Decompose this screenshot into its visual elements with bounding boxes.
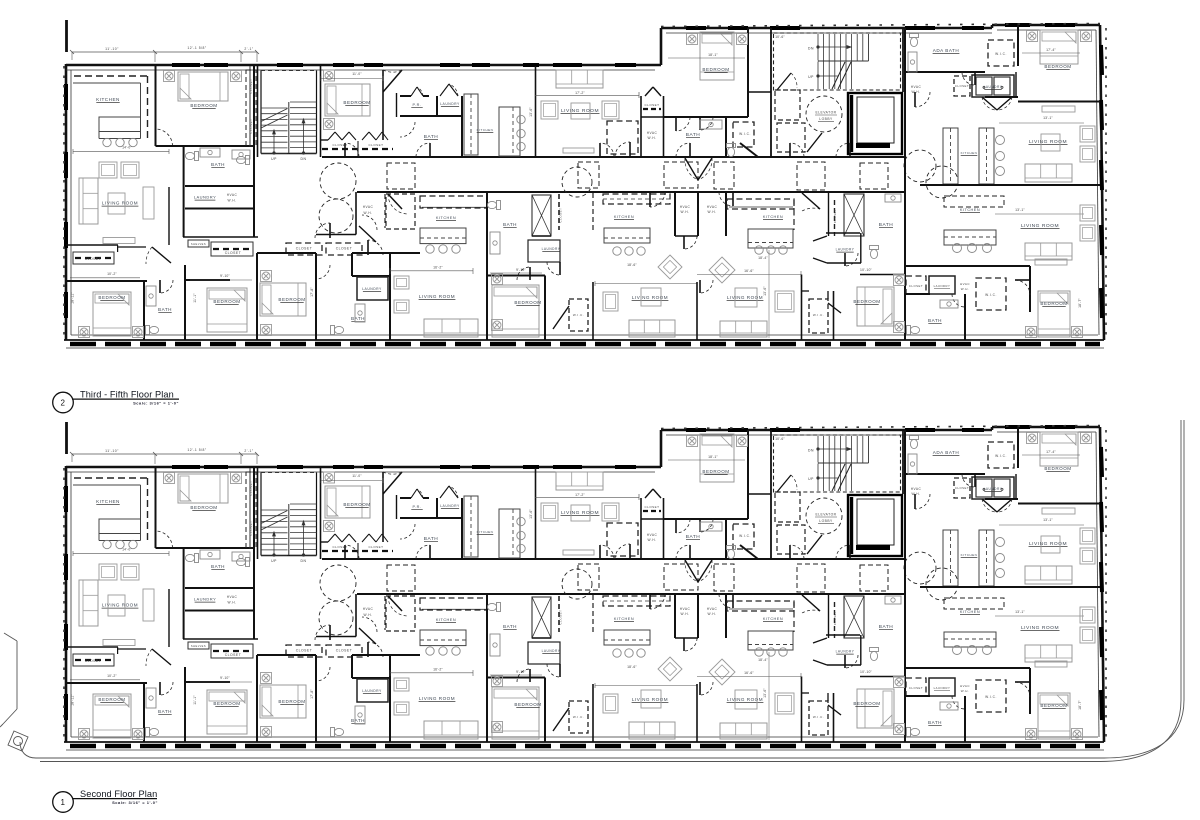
svg-text:LIVING ROOM: LIVING ROOM [419, 696, 455, 701]
svg-text:W.H.: W.H. [228, 601, 237, 605]
svg-text:ADA BATH: ADA BATH [933, 48, 959, 53]
svg-text:BEDROOM: BEDROOM [278, 699, 305, 704]
svg-text:18'-11": 18'-11" [71, 292, 75, 304]
svg-text:BEDROOM: BEDROOM [853, 701, 880, 706]
svg-text:2'-1": 2'-1" [244, 47, 254, 51]
svg-text:UP: UP [271, 559, 277, 563]
svg-text:11'-1": 11'-1" [193, 695, 197, 705]
svg-text:DN: DN [301, 559, 307, 563]
svg-text:HVAC: HVAC [707, 607, 718, 611]
svg-text:17'-8": 17'-8" [310, 688, 314, 698]
svg-text:KITCHEN: KITCHEN [96, 499, 120, 504]
svg-text:W.I.C.: W.I.C. [813, 313, 824, 317]
svg-text:W.I.C.: W.I.C. [985, 293, 997, 297]
svg-text:LAUNDRY: LAUNDRY [194, 597, 217, 602]
svg-text:KITCHEN: KITCHEN [477, 128, 494, 132]
svg-text:18'-11": 18'-11" [71, 694, 75, 706]
svg-text:1: 1 [61, 798, 66, 807]
svg-text:LAUNDRY: LAUNDRY [934, 284, 951, 288]
svg-text:LIVING ROOM: LIVING ROOM [727, 697, 763, 702]
svg-text:LAUNDRY: LAUNDRY [194, 195, 217, 200]
svg-text:KITCHEN: KITCHEN [763, 215, 783, 219]
svg-text:KITCHEN: KITCHEN [96, 97, 120, 102]
svg-text:CLOSET: CLOSET [909, 284, 923, 288]
svg-text:LIVING ROOM: LIVING ROOM [1029, 139, 1067, 145]
svg-text:10'-2": 10'-2" [107, 674, 117, 678]
svg-text:BATH: BATH [879, 624, 893, 630]
svg-text:11'-0": 11'-0" [352, 474, 362, 478]
svg-text:BATH: BATH [211, 162, 225, 167]
svg-text:17'-4": 17'-4" [1046, 450, 1056, 454]
svg-text:13'-1": 13'-1" [1043, 116, 1053, 120]
svg-text:CLOSET: CLOSET [336, 247, 353, 251]
svg-text:LOBBY: LOBBY [819, 117, 833, 121]
svg-text:BATH: BATH [503, 222, 517, 227]
svg-text:18'-4": 18'-4" [758, 256, 768, 260]
svg-text:SHELVES: SHELVES [191, 242, 206, 246]
svg-text:UP: UP [808, 75, 814, 79]
svg-text:BATH: BATH [424, 134, 438, 140]
svg-text:LIVING ROOM: LIVING ROOM [102, 603, 138, 608]
svg-text:LIVING ROOM: LIVING ROOM [1021, 223, 1059, 229]
svg-text:CLOSET: CLOSET [955, 84, 969, 88]
svg-text:CLOSET: CLOSET [644, 505, 659, 509]
svg-text:W.H.: W.H. [681, 210, 690, 214]
svg-text:BEDROOM: BEDROOM [702, 67, 729, 72]
svg-text:W.H.: W.H. [364, 613, 373, 617]
svg-text:W.H.: W.H. [681, 612, 690, 616]
svg-text:LAUNDRY: LAUNDRY [362, 689, 382, 693]
svg-text:17'-2": 17'-2" [575, 493, 585, 497]
svg-text:KITCHEN: KITCHEN [961, 553, 978, 557]
svg-text:BATH: BATH [351, 316, 365, 321]
svg-text:BEDROOM: BEDROOM [190, 505, 217, 510]
svg-text:BATH: BATH [686, 534, 700, 540]
svg-text:CLOSET: CLOSET [559, 609, 563, 624]
svg-text:BEDROOM: BEDROOM [190, 103, 217, 108]
svg-text:11'-10": 11'-10" [105, 449, 119, 453]
svg-text:P.R.: P.R. [413, 505, 422, 509]
svg-text:17'-2": 17'-2" [575, 91, 585, 95]
svg-text:LIVING ROOM: LIVING ROOM [1029, 541, 1067, 547]
svg-text:CLOSET: CLOSET [955, 486, 969, 490]
svg-text:CLOSET: CLOSET [644, 103, 659, 107]
svg-text:W.H.: W.H. [648, 136, 657, 140]
svg-text:LAUNDRY: LAUNDRY [836, 650, 855, 654]
svg-text:BATH: BATH [351, 718, 365, 723]
svg-text:18'-4": 18'-4" [758, 658, 768, 662]
svg-text:CLOSET: CLOSET [249, 78, 253, 93]
svg-text:11'-1": 11'-1" [193, 293, 197, 303]
svg-text:18'-7": 18'-7" [1078, 699, 1082, 709]
svg-text:CLOSET: CLOSET [559, 207, 563, 222]
svg-text:LAUNDRY: LAUNDRY [836, 248, 855, 252]
svg-text:W.H.: W.H. [648, 538, 657, 542]
svg-text:CLOSET: CLOSET [249, 118, 253, 133]
svg-text:KITCHEN: KITCHEN [614, 215, 634, 219]
svg-text:LIVING ROOM: LIVING ROOM [632, 697, 668, 702]
svg-text:9'-10": 9'-10" [220, 274, 230, 278]
svg-text:HVAC: HVAC [363, 205, 374, 209]
svg-text:HVAC: HVAC [960, 282, 970, 286]
svg-text:CLOSET: CLOSET [336, 649, 353, 653]
svg-text:HVAC: HVAC [911, 85, 922, 89]
svg-text:W.H.: W.H. [708, 210, 717, 214]
svg-text:CLOSET: CLOSET [909, 686, 923, 690]
svg-text:SHELVES: SHELVES [191, 644, 206, 648]
svg-text:Scale: 3/16" = 1'-0": Scale: 3/16" = 1'-0" [133, 401, 179, 406]
svg-text:W.H.: W.H. [912, 492, 921, 496]
svg-text:KITCHEN: KITCHEN [614, 617, 634, 621]
svg-text:BATH: BATH [424, 536, 438, 542]
svg-text:13'-6": 13'-6" [529, 106, 533, 116]
svg-text:W.I.C.: W.I.C. [985, 695, 997, 699]
svg-text:14'-0": 14'-0" [122, 146, 132, 150]
svg-text:W.H.: W.H. [961, 689, 970, 693]
svg-text:KITCHEN: KITCHEN [436, 618, 456, 622]
svg-text:BATH: BATH [503, 624, 517, 629]
svg-text:ADA BATH: ADA BATH [933, 450, 959, 455]
svg-text:BEDROOM: BEDROOM [278, 297, 305, 302]
svg-text:BEDROOM: BEDROOM [1040, 301, 1067, 306]
svg-text:HVAC: HVAC [680, 205, 691, 209]
svg-text:HVAC: HVAC [227, 595, 238, 599]
svg-text:DN: DN [808, 47, 814, 51]
svg-text:13'-6": 13'-6" [763, 687, 767, 697]
svg-text:10'-6": 10'-6" [775, 35, 785, 39]
svg-text:CLOSET: CLOSET [368, 143, 383, 147]
svg-text:17'-8": 17'-8" [310, 286, 314, 296]
svg-text:BEDROOM: BEDROOM [213, 299, 240, 304]
svg-text:CLOSET: CLOSET [296, 649, 313, 653]
svg-text:W.H.: W.H. [961, 287, 970, 291]
svg-text:BEDROOM: BEDROOM [853, 299, 880, 304]
svg-text:10'-2": 10'-2" [107, 272, 117, 276]
svg-text:W.H.: W.H. [228, 199, 237, 203]
svg-text:BEDROOM: BEDROOM [1040, 703, 1067, 708]
svg-text:W.H.: W.H. [912, 90, 921, 94]
svg-text:LIVING ROOM: LIVING ROOM [727, 295, 763, 300]
svg-text:BATH: BATH [686, 132, 700, 138]
svg-text:2'-1": 2'-1" [244, 449, 254, 453]
svg-text:BATH: BATH [879, 222, 893, 228]
svg-text:CLOSET: CLOSET [368, 545, 383, 549]
svg-text:CLOSET: CLOSET [249, 520, 253, 535]
svg-text:LIVING ROOM: LIVING ROOM [561, 108, 599, 114]
svg-text:LAUNDRY: LAUNDRY [984, 487, 1003, 491]
svg-text:KITCHEN: KITCHEN [960, 610, 980, 614]
svg-text:18'-6": 18'-6" [627, 665, 637, 669]
svg-text:18'-1": 18'-1" [708, 53, 718, 57]
svg-text:BEDROOM: BEDROOM [514, 702, 541, 707]
svg-text:14'-0": 14'-0" [122, 548, 132, 552]
svg-text:W.I.C.: W.I.C. [995, 52, 1007, 56]
svg-text:16'-6": 16'-6" [744, 269, 754, 273]
svg-text:HVAC: HVAC [227, 193, 238, 197]
svg-text:KITCHEN: KITCHEN [436, 216, 456, 220]
svg-text:16'-2": 16'-2" [433, 266, 443, 270]
svg-text:LAUNDRY: LAUNDRY [542, 247, 561, 251]
svg-text:W.I.C.: W.I.C. [573, 715, 584, 719]
svg-text:BATH: BATH [158, 307, 172, 312]
svg-text:LAUNDRY: LAUNDRY [934, 686, 951, 690]
svg-text:LAUNDRY: LAUNDRY [440, 504, 460, 508]
svg-text:BEDROOM: BEDROOM [1044, 64, 1071, 69]
svg-text:BATH: BATH [158, 709, 172, 714]
svg-text:9'-10": 9'-10" [220, 676, 230, 680]
svg-text:KITCHEN: KITCHEN [961, 151, 978, 155]
svg-text:18'-1": 18'-1" [708, 455, 718, 459]
svg-text:DN: DN [301, 157, 307, 161]
svg-text:ELEVATOR: ELEVATOR [815, 513, 836, 517]
svg-text:LIVING ROOM: LIVING ROOM [632, 295, 668, 300]
svg-text:13'-1": 13'-1" [1043, 518, 1053, 522]
svg-text:LAUNDRY: LAUNDRY [542, 649, 561, 653]
svg-text:LOBBY: LOBBY [819, 519, 833, 523]
svg-text:CLOSET: CLOSET [249, 480, 253, 495]
svg-text:DN: DN [808, 449, 814, 453]
svg-text:BATH: BATH [928, 318, 942, 323]
svg-text:11'-0": 11'-0" [352, 72, 362, 76]
svg-text:CLOSET: CLOSET [833, 611, 837, 625]
svg-text:W.H.: W.H. [364, 211, 373, 215]
svg-text:BEDROOM: BEDROOM [702, 469, 729, 474]
svg-text:LAUNDRY: LAUNDRY [984, 85, 1003, 89]
svg-text:17'-4": 17'-4" [1046, 48, 1056, 52]
svg-text:HVAC: HVAC [647, 533, 658, 537]
svg-text:CLOSET: CLOSET [833, 209, 837, 223]
svg-text:CLOSET: CLOSET [296, 247, 313, 251]
svg-text:W.H.: W.H. [708, 612, 717, 616]
svg-text:LAUNDRY: LAUNDRY [440, 102, 460, 106]
svg-text:ELEVATOR: ELEVATOR [815, 111, 836, 115]
svg-text:13'-6": 13'-6" [763, 285, 767, 295]
svg-text:P.R.: P.R. [413, 103, 422, 107]
svg-text:18'-6": 18'-6" [627, 263, 637, 267]
svg-text:W.I.C.: W.I.C. [739, 534, 751, 538]
svg-text:12'-1 5/8": 12'-1 5/8" [187, 46, 207, 50]
svg-text:12'-1 5/8": 12'-1 5/8" [187, 448, 207, 452]
svg-text:Scale: 3/16" = 1'-0": Scale: 3/16" = 1'-0" [112, 800, 158, 805]
svg-text:10'-10": 10'-10" [860, 268, 873, 272]
svg-text:BEDROOM: BEDROOM [98, 697, 125, 702]
svg-text:Second Floor Plan: Second Floor Plan [80, 789, 157, 799]
svg-text:HVAC: HVAC [647, 131, 658, 135]
svg-text:10'-10": 10'-10" [860, 670, 873, 674]
svg-text:CLOSET: CLOSET [85, 659, 102, 663]
svg-text:13'-6": 13'-6" [529, 508, 533, 518]
svg-text:LIVING ROOM: LIVING ROOM [561, 510, 599, 516]
svg-text:UP: UP [271, 157, 277, 161]
svg-text:KITCHEN: KITCHEN [763, 617, 783, 621]
svg-text:13'-1": 13'-1" [1015, 208, 1025, 212]
svg-text:LAUNDRY: LAUNDRY [362, 287, 382, 291]
svg-text:W.I.C.: W.I.C. [739, 132, 751, 136]
svg-text:HVAC: HVAC [707, 205, 718, 209]
svg-text:W.I.C.: W.I.C. [573, 313, 584, 317]
svg-text:Third - Fifth Floor Plan: Third - Fifth Floor Plan [80, 390, 174, 400]
svg-text:HVAC: HVAC [363, 607, 374, 611]
svg-text:18'-7": 18'-7" [1078, 297, 1082, 307]
svg-text:KITCHEN: KITCHEN [477, 530, 494, 534]
svg-text:BEDROOM: BEDROOM [98, 295, 125, 300]
svg-text:HVAC: HVAC [960, 684, 970, 688]
svg-text:BEDROOM: BEDROOM [1044, 466, 1071, 471]
svg-text:KITCHEN: KITCHEN [960, 208, 980, 212]
svg-text:CLOSET: CLOSET [225, 251, 242, 255]
svg-text:CLOSET: CLOSET [85, 257, 102, 261]
svg-text:13'-1": 13'-1" [1015, 610, 1025, 614]
svg-text:BEDROOM: BEDROOM [343, 502, 370, 507]
svg-text:W.I.C.: W.I.C. [995, 454, 1007, 458]
svg-text:BEDROOM: BEDROOM [213, 701, 240, 706]
svg-text:2: 2 [61, 399, 66, 408]
svg-text:BATH: BATH [211, 564, 225, 569]
svg-text:BEDROOM: BEDROOM [343, 100, 370, 105]
svg-text:LIVING ROOM: LIVING ROOM [102, 201, 138, 206]
svg-text:16'-6": 16'-6" [744, 671, 754, 675]
svg-text:BEDROOM: BEDROOM [514, 300, 541, 305]
svg-text:11'-10": 11'-10" [105, 47, 119, 51]
svg-text:W.I.C.: W.I.C. [813, 715, 824, 719]
svg-text:16'-2": 16'-2" [433, 668, 443, 672]
svg-text:HVAC: HVAC [911, 487, 922, 491]
svg-text:LIVING ROOM: LIVING ROOM [419, 294, 455, 299]
svg-text:UP: UP [808, 477, 814, 481]
svg-text:CLOSET: CLOSET [225, 653, 242, 657]
svg-text:HVAC: HVAC [680, 607, 691, 611]
svg-text:BATH: BATH [928, 720, 942, 725]
svg-text:10'-6": 10'-6" [775, 437, 785, 441]
svg-text:LIVING ROOM: LIVING ROOM [1021, 625, 1059, 631]
